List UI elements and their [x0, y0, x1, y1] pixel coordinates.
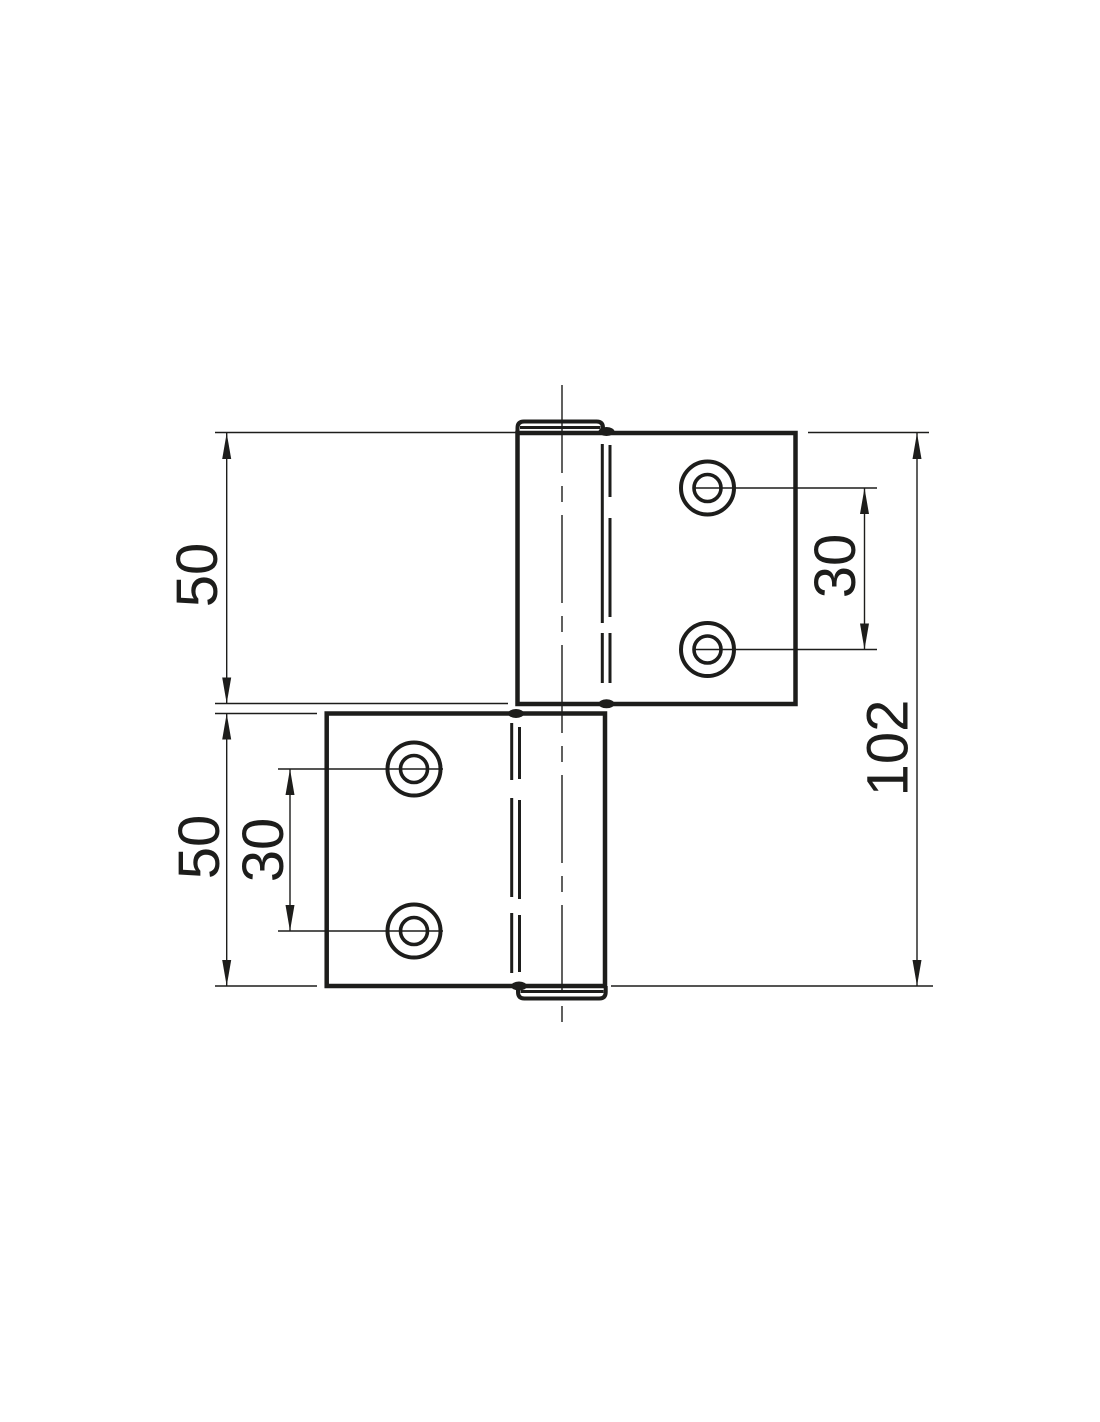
dim-label-lower-hole-spacing: 30 [231, 818, 296, 883]
lower-leaf [327, 714, 605, 987]
dim-label-lower-plate-height: 50 [167, 815, 232, 880]
hinge-drawing: 50 50 30 30 102 [0, 0, 1100, 1422]
dimension-upper-hole-spacing: 30 [803, 488, 869, 650]
technical-drawing-canvas: 50 50 30 30 102 [0, 0, 1100, 1422]
junction-dots [508, 427, 615, 991]
dim-label-total-height: 102 [856, 700, 921, 797]
dimension-total-height: 102 [856, 433, 922, 986]
extension-lines [215, 433, 933, 987]
dimension-lower-plate-height: 50 [167, 714, 232, 987]
dimension-upper-plate-height: 50 [165, 433, 231, 704]
dim-label-upper-hole-spacing: 30 [803, 534, 868, 599]
dimension-lower-hole-spacing: 30 [231, 769, 296, 931]
dim-label-upper-plate-height: 50 [165, 543, 230, 608]
upper-leaf [518, 433, 796, 704]
